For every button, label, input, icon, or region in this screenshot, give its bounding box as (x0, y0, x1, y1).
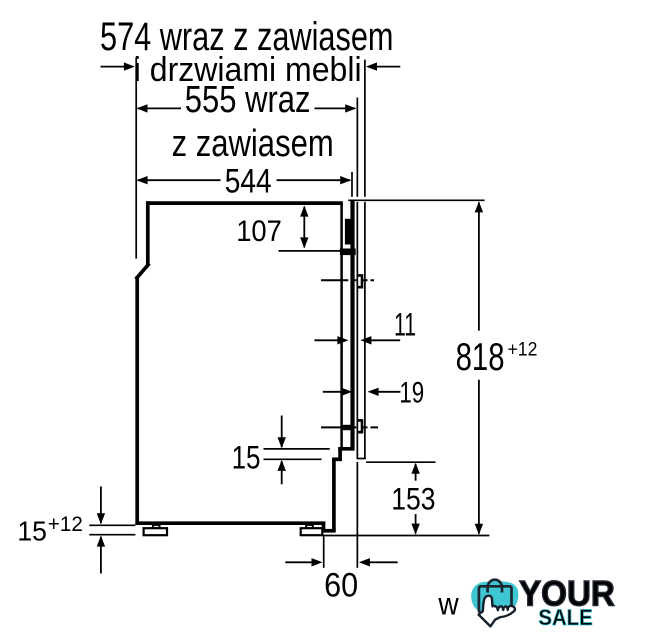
svg-text:60: 60 (324, 567, 358, 605)
svg-text:+12: +12 (48, 513, 83, 536)
svg-text:544: 544 (225, 163, 272, 201)
svg-text:19: 19 (399, 377, 424, 410)
svg-text:555 wraz: 555 wraz (185, 79, 311, 121)
svg-text:15: 15 (232, 439, 261, 475)
svg-text:w: w (438, 585, 460, 621)
svg-text:z zawiasem: z zawiasem (172, 123, 334, 165)
svg-text:+12: +12 (508, 340, 538, 361)
svg-text:SALE: SALE (538, 605, 592, 630)
svg-text:15: 15 (17, 515, 47, 546)
svg-text:107: 107 (236, 215, 282, 248)
svg-text:153: 153 (391, 481, 435, 517)
svg-text:818: 818 (456, 336, 505, 379)
svg-text:11: 11 (394, 307, 416, 343)
